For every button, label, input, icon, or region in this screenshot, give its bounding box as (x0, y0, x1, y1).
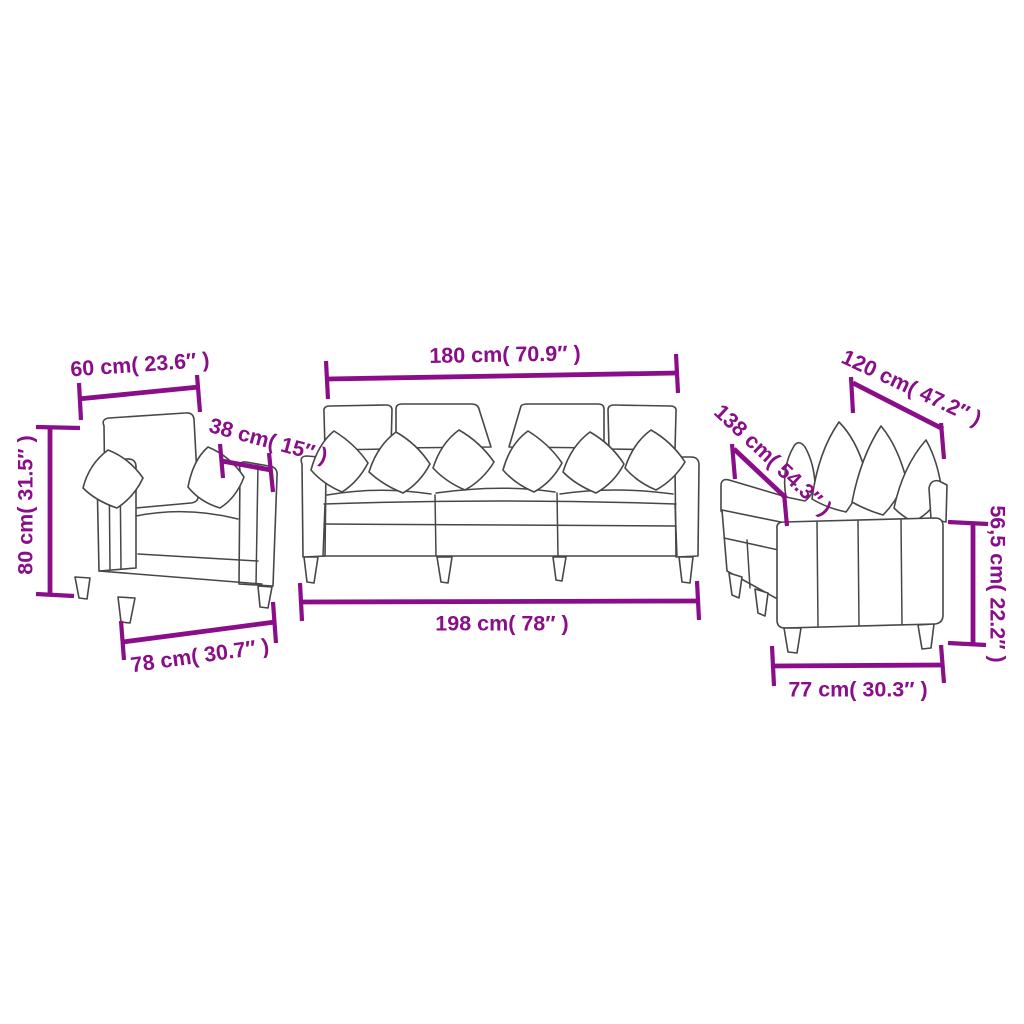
three-seater-top-width-label: 180 cm( 70.9″ ) (429, 341, 581, 368)
two-seater-arm-height-tick-top (948, 522, 988, 524)
three-seater-leg-1 (304, 557, 318, 583)
two-seater-diagonal-tick-right (784, 493, 787, 526)
two-seater-arm-height-tick-bottom (948, 643, 986, 645)
two-seater-top-depth-tick-left (851, 377, 853, 413)
three-seater-bottom-width-line (301, 601, 698, 602)
armchair-top-width-tick-right (197, 375, 200, 412)
armchair-top-width-line (78, 387, 199, 399)
two-seater-bottom-width-tick-left (772, 646, 774, 686)
armchair-leg-front-left (118, 597, 135, 623)
two-seater-far-arm (929, 481, 947, 522)
three-seater-seat-top-edges (327, 488, 673, 495)
two-seater-front-arm-panel (777, 518, 943, 628)
two-seater-top-depth-tick-right (941, 423, 944, 459)
two-seater-bottom-width-line (773, 665, 943, 666)
armchair-height-tick-bottom (36, 594, 74, 596)
two-seater-bottom-width-tick-right (941, 645, 944, 683)
armchair-bottom-width-tick-left (121, 621, 124, 660)
armchair-bottom-width-dimension: 78 cm( 30.7″ ) (121, 602, 276, 677)
armchair-top-width-dimension: 60 cm( 23.6″ ) (70, 348, 211, 420)
three-seater-top-width-tick-right (676, 354, 678, 393)
armchair-seat-top-edge (136, 512, 238, 519)
three-seater-top-width-dimension: 180 cm( 70.9″ ) (326, 341, 678, 399)
two-seater-leg-front-left (784, 628, 801, 653)
two-seater-diagonal-tick-left (732, 444, 735, 479)
three-seater-top-width-tick-left (326, 361, 328, 399)
two-seater-bottom-width-label: 77 cm( 30.3″ ) (788, 678, 927, 702)
armchair-leg-back-left (75, 577, 90, 599)
diagram-canvas: 60 cm( 23.6″ ) 38 cm( 15″ ) 80 cm( 31.5″… (0, 0, 1024, 1024)
armchair-leg-front-right (258, 586, 272, 608)
three-seater-bottom-width-tick-left (300, 583, 302, 621)
three-seater-bottom-width-dimension: 198 cm( 78″ ) (300, 581, 699, 636)
armchair-top-width-label: 60 cm( 23.6″ ) (70, 348, 211, 382)
armchair-top-width-tick-left (79, 383, 81, 420)
three-seater-bottom-width-tick-right (697, 581, 699, 620)
sofa-set-dimension-diagram: 60 cm( 23.6″ ) 38 cm( 15″ ) 80 cm( 31.5″… (0, 0, 1024, 1024)
armchair-bottom-width-tick-right (273, 602, 276, 643)
armchair-seat-depth-tick-left (220, 444, 223, 478)
two-seater-leg-back-2 (755, 589, 768, 616)
armchair-bottom-edge (99, 571, 262, 584)
three-seater-leg-4 (679, 557, 693, 583)
three-seater-bottom-edge (323, 504, 677, 556)
three-seater-leg-2 (437, 557, 452, 583)
armchair-height-label: 80 cm( 31.5″ ) (14, 435, 38, 574)
armchair-height-tick-top (36, 427, 80, 428)
armchair-height-dimension: 80 cm( 31.5″ ) (14, 427, 80, 596)
two-seater-leg-back-1 (729, 573, 742, 598)
two-seater-arm-height-label: 56,5 cm( 22.2″ ) (985, 505, 1009, 662)
three-seater-leg-3 (553, 557, 566, 581)
two-seater-leg-front-right (918, 624, 934, 649)
three-seater-bottom-width-label: 198 cm( 78″ ) (435, 612, 568, 636)
three-seater-drawing (301, 404, 699, 583)
three-seater-seat-front-edge (324, 501, 676, 504)
three-seater-seat-seam (324, 524, 676, 526)
two-seater-top-depth-dimension: 120 cm( 47.2″ ) (838, 345, 985, 459)
three-seater-top-width-line (327, 373, 677, 379)
two-seater-bottom-width-dimension: 77 cm( 30.3″ ) (772, 645, 944, 702)
two-seater-arm-height-dimension: 56,5 cm( 22.2″ ) (948, 505, 1009, 662)
